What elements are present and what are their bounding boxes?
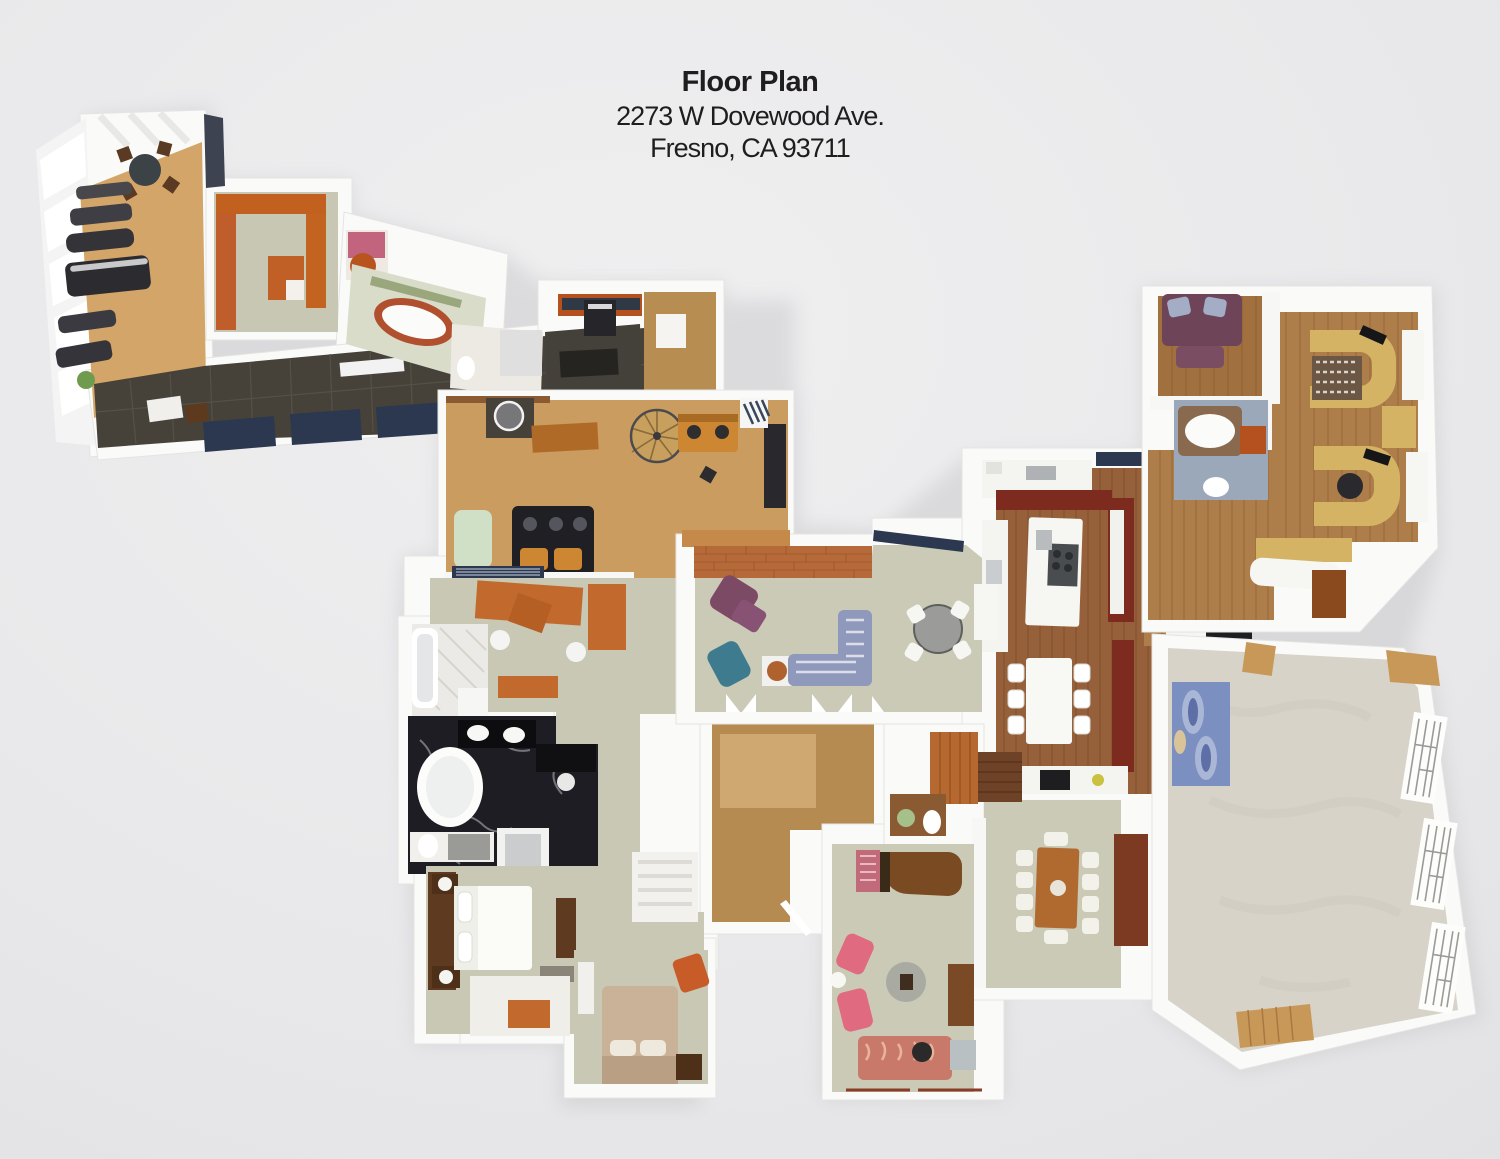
svg-text:Floor Plan: Floor Plan — [682, 66, 819, 98]
svg-text:2273 W Dovewood Ave.: 2273 W Dovewood Ave. — [616, 101, 884, 131]
svg-text:Fresno, CA 93711: Fresno, CA 93711 — [650, 133, 850, 163]
